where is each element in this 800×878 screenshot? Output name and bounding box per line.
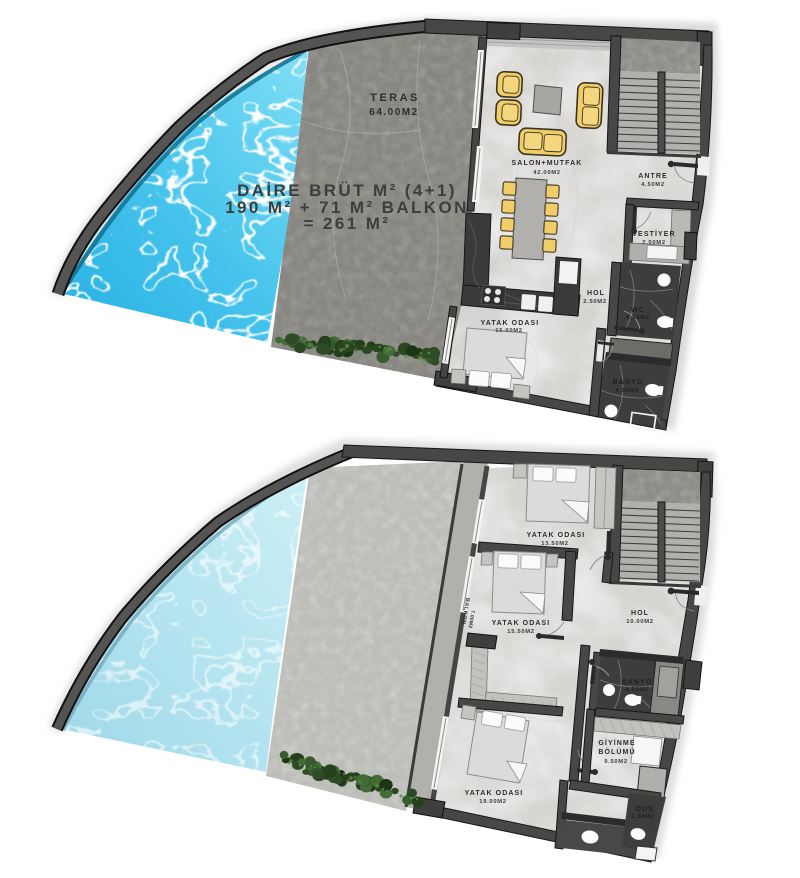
svg-text:4.50M2: 4.50M2 xyxy=(626,315,650,321)
svg-text:10.00M2: 10.00M2 xyxy=(626,619,653,625)
svg-text:HOL: HOL xyxy=(631,610,649,617)
svg-text:64.00M2: 64.00M2 xyxy=(369,107,418,118)
svg-text:ANTRE: ANTRE xyxy=(638,173,668,180)
svg-text:4.50M2: 4.50M2 xyxy=(641,182,665,188)
svg-text:2.50M2: 2.50M2 xyxy=(583,299,607,305)
svg-text:BANYO: BANYO xyxy=(622,679,653,686)
svg-text:15.00M2: 15.00M2 xyxy=(495,328,522,334)
svg-text:4.50M2: 4.50M2 xyxy=(625,687,649,693)
svg-text:BANYO: BANYO xyxy=(613,379,644,386)
svg-text:BÖLÜMÜ: BÖLÜMÜ xyxy=(598,747,635,756)
svg-text:YATAK ODASI: YATAK ODASI xyxy=(481,320,540,327)
svg-text:42.00M2: 42.00M2 xyxy=(533,170,560,176)
svg-text:WC: WC xyxy=(631,307,645,314)
svg-text:19.00M2: 19.00M2 xyxy=(479,799,506,805)
svg-text:= 261 M²: = 261 M² xyxy=(304,214,391,233)
svg-text:YATAK ODASI: YATAK ODASI xyxy=(465,790,524,797)
svg-text:2.50M2: 2.50M2 xyxy=(631,814,655,820)
svg-text:GİYİNME: GİYİNME xyxy=(598,739,635,747)
svg-text:HOL: HOL xyxy=(587,290,605,297)
svg-text:15.50M2: 15.50M2 xyxy=(507,629,534,635)
svg-text:DUŞ: DUŞ xyxy=(636,806,654,813)
svg-text:YATAK ODASI: YATAK ODASI xyxy=(492,620,551,627)
svg-text:4.00M2: 4.00M2 xyxy=(615,388,639,394)
svg-text:2.50M2: 2.50M2 xyxy=(642,240,666,246)
svg-text:TERAS: TERAS xyxy=(370,92,420,104)
svg-text:VESTİYER: VESTİYER xyxy=(632,230,675,238)
svg-text:YATAK ODASI: YATAK ODASI xyxy=(527,532,586,539)
svg-text:9.50M2: 9.50M2 xyxy=(604,759,628,765)
svg-text:SALON+MUTFAK: SALON+MUTFAK xyxy=(512,160,583,167)
svg-text:13.50M2: 13.50M2 xyxy=(541,541,568,547)
